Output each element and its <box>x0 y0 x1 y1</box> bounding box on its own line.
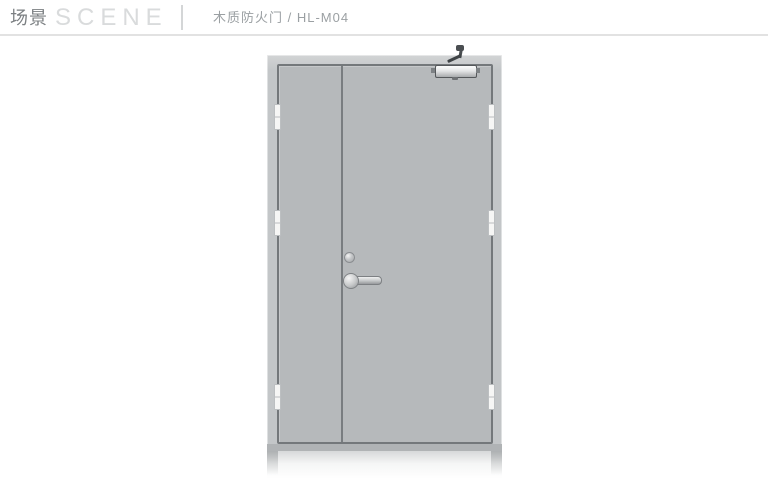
door-hinge <box>488 384 495 410</box>
door-hinge <box>274 210 281 236</box>
lock-cylinder <box>344 252 355 263</box>
door-hinge <box>488 210 495 236</box>
fire-door-illustration <box>267 55 502 451</box>
floor-reflection <box>267 451 278 475</box>
door-closer-screw <box>452 77 458 80</box>
door-opening <box>277 64 493 444</box>
right-door-leaf <box>343 66 491 442</box>
page-header: 场景 SCENE 木质防火门 / HL-M04 <box>0 0 768 36</box>
door-frame-sill <box>267 444 502 451</box>
door-hinge <box>488 104 495 130</box>
header-divider <box>181 5 183 30</box>
floor-reflection <box>491 451 502 475</box>
product-breadcrumb: 木质防火门 / HL-M04 <box>213 10 349 26</box>
page-title-cn: 场景 <box>10 8 48 28</box>
door-closer-endcap <box>431 68 435 73</box>
floor-reflection <box>267 451 502 479</box>
door-hinge <box>274 104 281 130</box>
door-closer-endcap <box>476 68 480 73</box>
door-handle-rose <box>343 273 359 289</box>
page-title-en: SCENE <box>55 5 168 31</box>
leaf-divider <box>341 66 343 442</box>
door-hinge <box>274 384 281 410</box>
scene-canvas <box>0 36 768 480</box>
left-door-leaf <box>279 66 341 442</box>
